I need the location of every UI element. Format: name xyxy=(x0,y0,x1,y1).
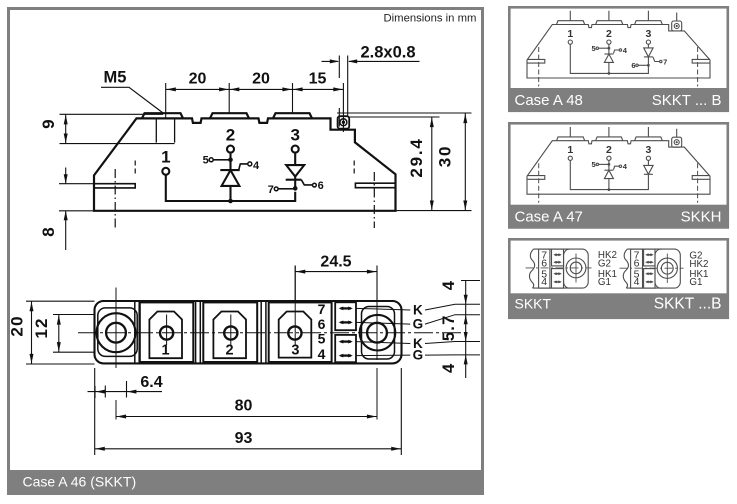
svg-text:6: 6 xyxy=(318,180,324,192)
svg-text:9: 9 xyxy=(39,119,58,128)
svg-text:4: 4 xyxy=(634,276,640,288)
svg-text:2: 2 xyxy=(606,144,612,156)
svg-text:3: 3 xyxy=(645,144,651,156)
svg-text:15: 15 xyxy=(309,70,327,87)
svg-text:Case A 47: Case A 47 xyxy=(515,209,583,226)
svg-text:SKKT ...B: SKKT ...B xyxy=(654,296,722,313)
svg-text:4: 4 xyxy=(623,46,628,55)
svg-text:5: 5 xyxy=(592,160,596,169)
svg-text:29.4: 29.4 xyxy=(407,137,426,177)
svg-text:7: 7 xyxy=(663,57,667,66)
svg-text:2: 2 xyxy=(225,343,233,359)
svg-text:5: 5 xyxy=(592,44,596,53)
svg-text:G1: G1 xyxy=(598,277,611,288)
svg-text:1: 1 xyxy=(567,28,573,40)
svg-text:2.8x0.8: 2.8x0.8 xyxy=(360,43,415,61)
svg-text:5.7: 5.7 xyxy=(440,315,458,342)
svg-text:Case A 48: Case A 48 xyxy=(515,92,583,109)
svg-text:M5: M5 xyxy=(104,69,127,87)
svg-text:2: 2 xyxy=(226,126,235,145)
svg-text:5: 5 xyxy=(203,155,209,167)
svg-text:4: 4 xyxy=(623,162,628,171)
svg-text:4: 4 xyxy=(440,363,458,373)
svg-text:20: 20 xyxy=(252,70,270,87)
svg-text:4: 4 xyxy=(440,280,458,290)
svg-text:SKKH: SKKH xyxy=(681,209,722,226)
svg-text:20: 20 xyxy=(8,315,27,336)
svg-text:24.5: 24.5 xyxy=(320,253,351,270)
svg-text:3: 3 xyxy=(645,28,651,40)
svg-text:1: 1 xyxy=(162,343,170,359)
svg-text:SKKT: SKKT xyxy=(515,296,552,312)
svg-text:G2: G2 xyxy=(598,259,611,270)
svg-text:80: 80 xyxy=(235,397,253,414)
svg-text:G1: G1 xyxy=(689,277,702,288)
svg-text:Case A 46 (SKKT): Case A 46 (SKKT) xyxy=(23,474,137,490)
svg-text:G: G xyxy=(413,317,424,332)
svg-text:4: 4 xyxy=(253,160,260,172)
svg-text:8: 8 xyxy=(39,227,58,236)
svg-text:2: 2 xyxy=(606,28,612,40)
svg-text:12: 12 xyxy=(32,317,51,338)
svg-text:1: 1 xyxy=(567,144,573,156)
svg-text:SKKT ... B: SKKT ... B xyxy=(652,92,722,109)
svg-text:6: 6 xyxy=(631,61,635,70)
svg-text:93: 93 xyxy=(235,430,253,447)
svg-text:Dimensions in mm: Dimensions in mm xyxy=(384,13,477,25)
svg-text:4: 4 xyxy=(541,276,547,288)
svg-text:6.4: 6.4 xyxy=(140,374,162,391)
svg-text:5: 5 xyxy=(318,331,326,347)
svg-text:20: 20 xyxy=(189,70,207,87)
svg-text:7: 7 xyxy=(318,301,326,317)
svg-text:30: 30 xyxy=(436,145,455,168)
svg-text:4: 4 xyxy=(318,346,326,362)
svg-text:7: 7 xyxy=(268,184,274,196)
svg-text:3: 3 xyxy=(290,126,299,145)
svg-text:K: K xyxy=(413,303,423,318)
svg-text:1: 1 xyxy=(161,148,170,167)
svg-text:G: G xyxy=(413,348,424,363)
svg-text:3: 3 xyxy=(291,343,299,359)
